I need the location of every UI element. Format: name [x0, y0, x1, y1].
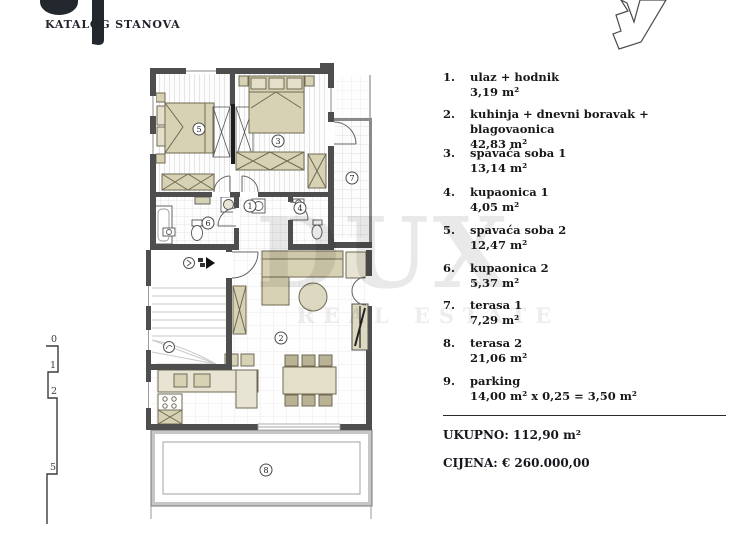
legend-label: kupaonica 1	[470, 185, 549, 199]
room-label-2: 2	[278, 334, 283, 343]
legend-area: 5,37 m²	[470, 276, 519, 290]
room-label-8: 8	[263, 466, 268, 475]
legend-item-4: 4. kupaonica 1 4,05 m²	[443, 185, 549, 215]
sideboard	[346, 252, 366, 278]
scale-mark-1: 1	[50, 360, 56, 371]
wardrobe-2	[162, 174, 214, 190]
legend-item-9: 9. parking 14,00 m² x 0,25 = 3,50 m²	[443, 374, 637, 404]
legend-label: parking	[470, 374, 520, 388]
legend-number: 4.	[443, 185, 470, 215]
legend-label: ulaz + hodnik	[470, 70, 559, 84]
legend-label: kupaonica 2	[470, 261, 549, 275]
scale-mark-2: 2	[51, 386, 57, 397]
legend-area: 4,05 m²	[470, 200, 519, 214]
floor-plan: 1 2 3 4 5 6 7 8 0 1 2 5	[0, 0, 740, 550]
legend-number: 1.	[443, 70, 470, 100]
legend-number: 5.	[443, 223, 470, 253]
hall-cabinet	[233, 286, 246, 334]
room-label-3: 3	[275, 137, 280, 146]
legend-number: 8.	[443, 336, 470, 366]
room-label-6: 6	[205, 219, 210, 228]
scale-mark-0: 0	[51, 334, 57, 345]
room-label-1: 1	[247, 202, 252, 211]
legend-area: 7,29 m²	[470, 313, 519, 327]
page-title: KATALOG STANOVA	[45, 18, 180, 31]
legend-item-5: 5. spavaća soba 2 12,47 m²	[443, 223, 566, 253]
legend-separator	[443, 415, 726, 416]
total-area: UKUPNO: 112,90 m²	[443, 428, 581, 442]
legend-item-8: 8. terasa 2 21,06 m²	[443, 336, 527, 366]
price: CIJENA: € 260.000,00	[443, 456, 590, 470]
boundary-ticks	[151, 506, 371, 519]
bed-1	[239, 76, 314, 133]
legend-number: 9.	[443, 374, 470, 404]
scale-mark-5: 5	[50, 462, 56, 473]
legend-number: 6.	[443, 261, 470, 291]
room-label-5: 5	[196, 125, 201, 134]
legend-item-7: 7. terasa 1 7,29 m²	[443, 298, 522, 328]
legend-label: spavaća soba 2	[470, 223, 566, 237]
dining-set	[283, 355, 336, 406]
legend-label: terasa 2	[470, 336, 522, 350]
legend-area: 14,00 m² x 0,25 = 3,50 m²	[470, 389, 637, 403]
legend-label: kuhinja + dnevni boravak + blagovaonica	[470, 107, 649, 136]
room-label-7: 7	[349, 174, 354, 183]
legend-number: 3.	[443, 146, 470, 176]
legend-area: 21,06 m²	[470, 351, 527, 365]
legend-number: 7.	[443, 298, 470, 328]
catalog-page: 1 2 3 4 5 6 7 8 0 1 2 5 DUX REAL ESTATE	[0, 0, 740, 550]
legend-area: 3,19 m²	[470, 85, 519, 99]
coffee-table	[299, 283, 327, 311]
site-outline-icon	[613, 0, 666, 49]
room-label-4: 4	[297, 204, 302, 213]
legend-label: terasa 1	[470, 298, 522, 312]
legend-item-3: 3. spavaća soba 1 13,14 m²	[443, 146, 566, 176]
scale-bar: 0 1 2 5	[46, 334, 58, 524]
legend-item-1: 1. ulaz + hodnik 3,19 m²	[443, 70, 559, 100]
legend-area: 12,47 m²	[470, 238, 527, 252]
legend-label: spavaća soba 1	[470, 146, 566, 160]
legend-area: 13,14 m²	[470, 161, 527, 175]
legend-item-6: 6. kupaonica 2 5,37 m²	[443, 261, 549, 291]
